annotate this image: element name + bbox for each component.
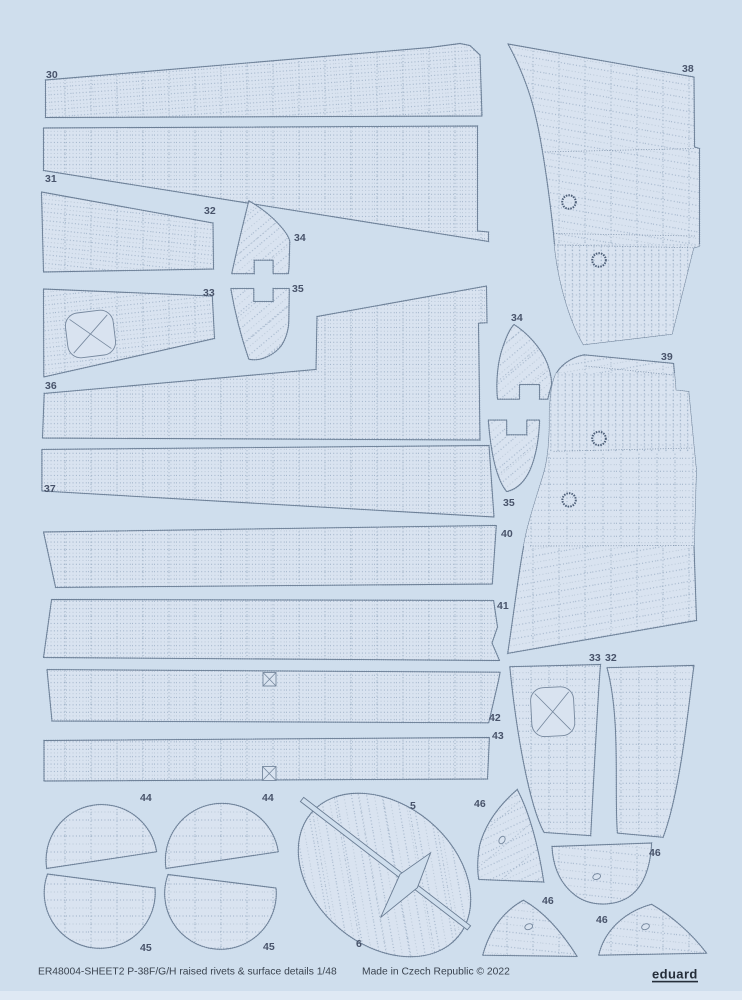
svg-text:46: 46 [649, 847, 661, 859]
svg-text:34: 34 [294, 232, 306, 244]
svg-text:43: 43 [492, 730, 504, 742]
svg-text:42: 42 [489, 712, 501, 724]
svg-text:32: 32 [204, 205, 216, 217]
svg-text:32: 32 [605, 652, 617, 664]
svg-text:46: 46 [474, 798, 486, 810]
svg-text:ER48004-SHEET2 P-38F/G/H raise: ER48004-SHEET2 P-38F/G/H raised rivets &… [38, 967, 337, 978]
svg-text:44: 44 [140, 792, 152, 804]
svg-text:34: 34 [511, 312, 523, 324]
svg-text:46: 46 [596, 914, 608, 926]
svg-text:36: 36 [45, 380, 57, 392]
svg-text:38: 38 [682, 63, 694, 75]
svg-text:45: 45 [140, 942, 152, 954]
svg-text:35: 35 [503, 497, 515, 509]
svg-text:Made in Czech Republic © 2022: Made in Czech Republic © 2022 [362, 967, 510, 978]
svg-text:41: 41 [497, 600, 509, 612]
svg-text:35: 35 [292, 283, 304, 295]
svg-text:44: 44 [262, 792, 274, 804]
svg-text:6: 6 [356, 938, 362, 950]
svg-text:37: 37 [44, 483, 56, 495]
svg-text:33: 33 [589, 652, 601, 664]
svg-text:40: 40 [501, 528, 513, 540]
svg-text:eduard: eduard [652, 967, 698, 982]
svg-text:5: 5 [410, 800, 416, 812]
svg-text:30: 30 [46, 69, 58, 81]
svg-text:45: 45 [263, 941, 275, 953]
svg-text:31: 31 [45, 173, 57, 185]
svg-text:39: 39 [661, 351, 673, 363]
svg-text:33: 33 [203, 287, 215, 299]
svg-text:46: 46 [542, 895, 554, 907]
